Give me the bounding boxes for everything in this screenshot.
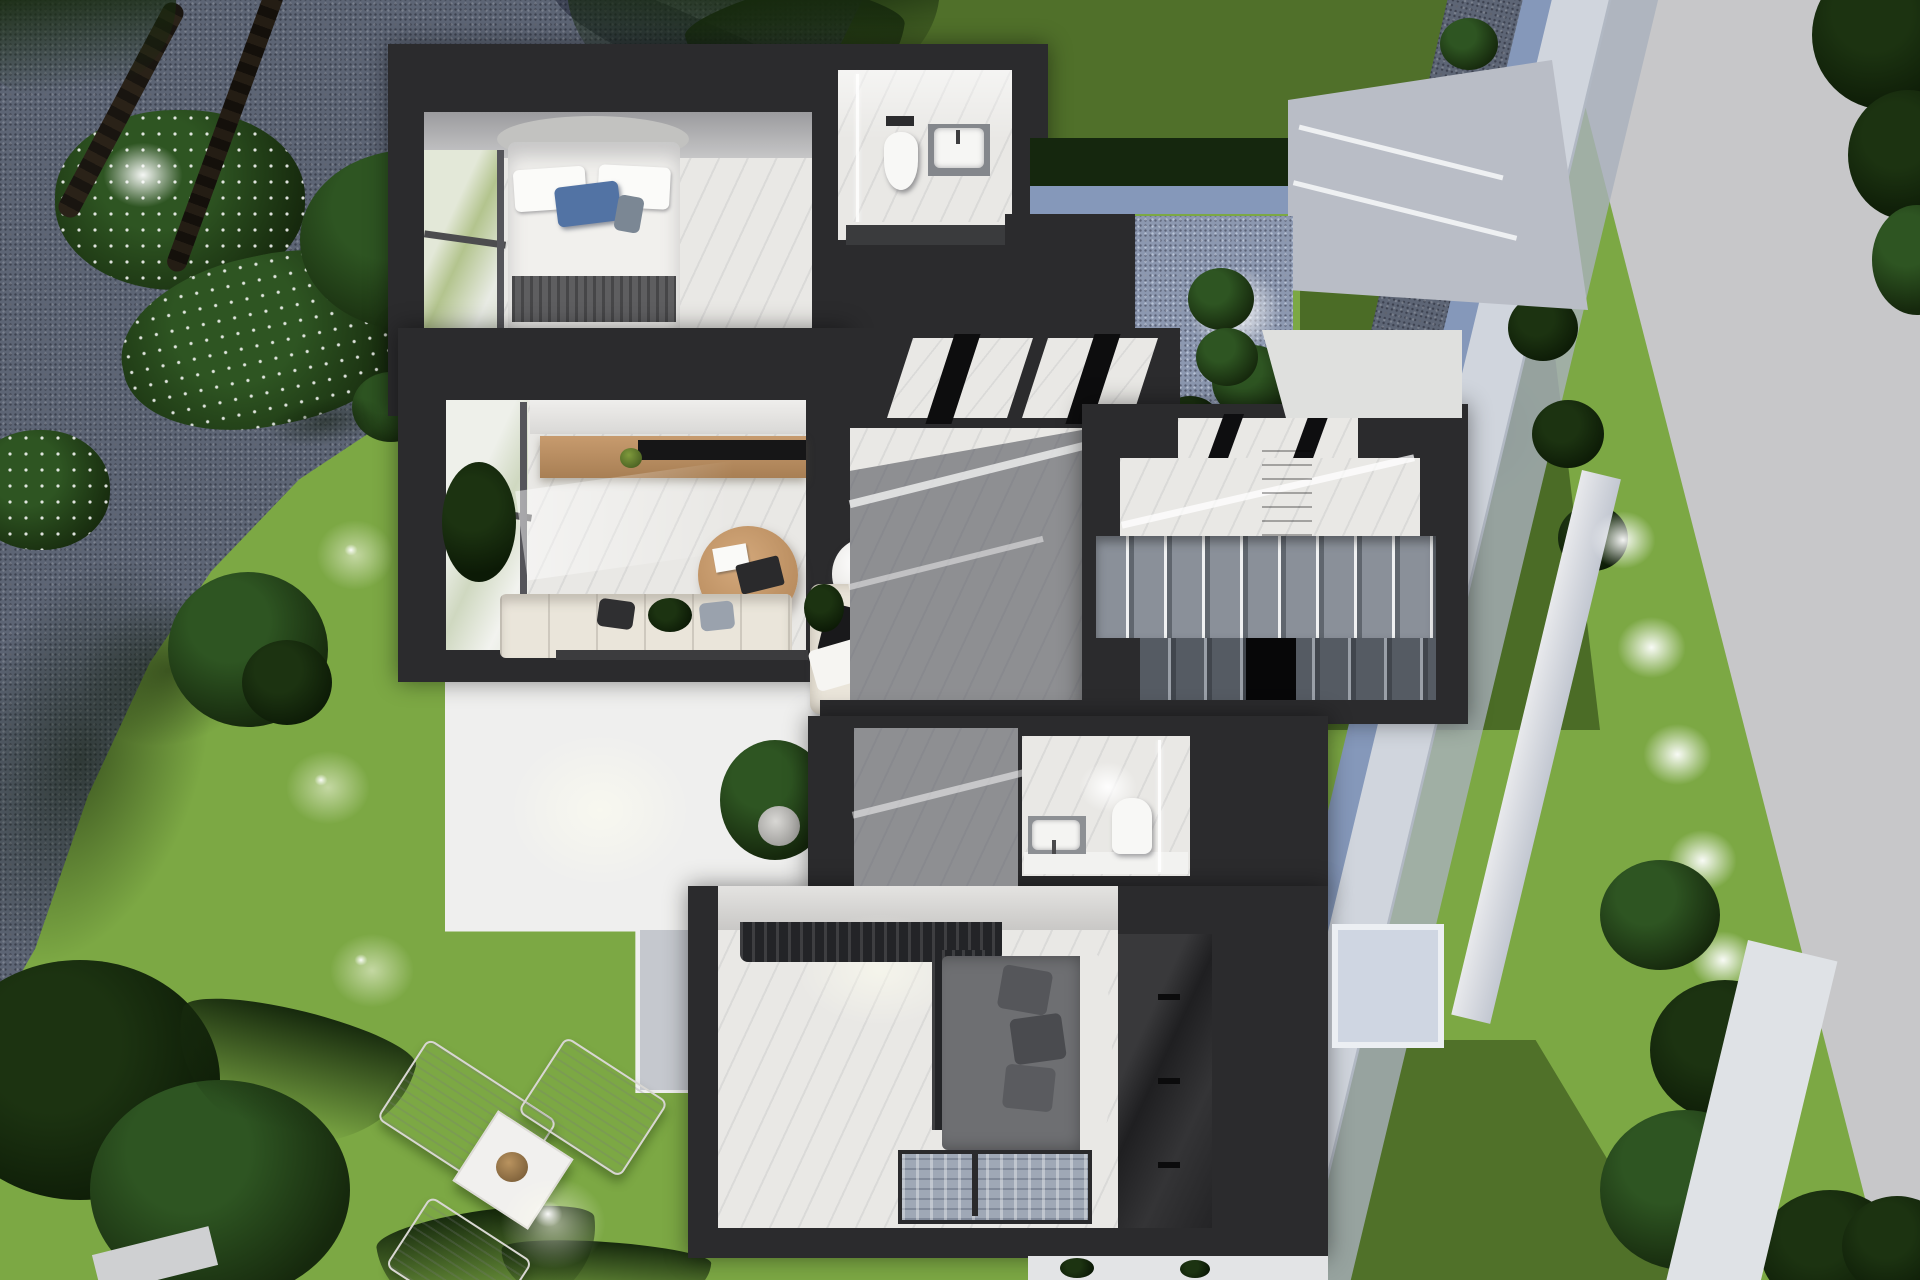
bush-row-4: [1532, 400, 1604, 468]
sofa-floor-mat: [556, 650, 808, 660]
plant-outside-window: [442, 462, 516, 582]
sideboard-plant: [620, 448, 642, 468]
garden-spot-topleft: [88, 130, 198, 220]
wardrobe-handle-3: [1158, 1162, 1180, 1168]
wall-spotlight-3: [1630, 712, 1725, 797]
lawn-light-3: [312, 918, 432, 1023]
bath1-faucet: [956, 130, 960, 144]
entry-wall-band: [1030, 186, 1292, 214]
landing-wardrobe: [1262, 444, 1312, 536]
bedroom2-rug: [898, 1150, 1092, 1224]
entry-walkway: [1262, 330, 1462, 418]
bath1-flush-plate: [886, 116, 914, 126]
living-back-wall: [530, 400, 806, 434]
bottom-paver-plant-1: [1060, 1258, 1094, 1278]
bed2-pillow-1: [997, 964, 1054, 1016]
sofa-pillow-gray: [699, 600, 736, 631]
corner-tree-tr-2: [1848, 90, 1920, 220]
round-tree-mid-2: [242, 640, 332, 725]
corner-tree-tr-3: [1872, 205, 1920, 315]
bush-row-top: [1440, 18, 1498, 70]
wc-glass-screen: [1158, 740, 1161, 872]
bath1-counter-bottom: [846, 222, 1006, 245]
driveway: [1288, 60, 1588, 310]
terrace-light-dot: [528, 1196, 568, 1232]
wardrobe-handle-1: [1158, 994, 1180, 1000]
bed2-pillow-2: [1009, 1013, 1067, 1066]
wc-floor-strip: [1024, 852, 1188, 874]
terrace-plant-pot: [758, 806, 800, 846]
bath1-glass-screen: [856, 74, 859, 236]
lawn-light-1-dot: [342, 542, 360, 558]
sofa-pillow-dark: [596, 598, 636, 631]
wardrobe-handle-2: [1158, 1078, 1180, 1084]
armchair-plant: [804, 584, 844, 632]
render-canvas: [0, 0, 1920, 1280]
bedroom2-rug-divider: [972, 1150, 978, 1216]
stairwell-gap: [1246, 638, 1296, 708]
stairs-upper-flight: [1096, 536, 1436, 638]
sofa-main: [500, 594, 792, 658]
bath1-toilet: [884, 132, 918, 190]
bed2-pillow-3: [1002, 1064, 1056, 1113]
rear-terrace: [1332, 924, 1444, 1048]
lawn-light-2-dot: [312, 772, 330, 788]
entry-hedge-band: [1030, 138, 1292, 188]
bed1-pillow-blue: [554, 180, 622, 228]
wc-washbasin: [1032, 820, 1080, 850]
bottom-paver-plant-2: [1180, 1260, 1210, 1278]
wc-faucet: [1052, 840, 1056, 854]
wall-spotlight-1: [1578, 500, 1668, 580]
tropical-plant-1: [1600, 860, 1720, 970]
entry-court-plant-1: [1188, 268, 1254, 330]
wall-spotlight-2: [1604, 605, 1699, 690]
bed1-throw: [512, 276, 676, 322]
wc-toilet: [1112, 798, 1152, 854]
hall-plant: [1196, 328, 1258, 386]
lawn-light-3-dot: [352, 952, 370, 968]
sofa-plant-decor: [648, 598, 692, 632]
